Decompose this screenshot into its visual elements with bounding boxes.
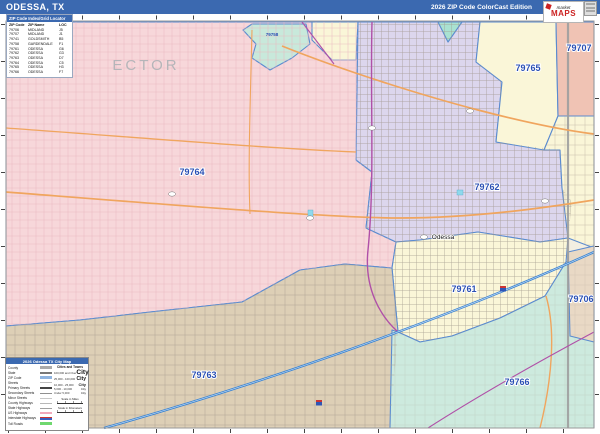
- legend-label: ZIP Code: [8, 376, 21, 380]
- zip-line-sample: [40, 376, 52, 379]
- legend-label: Streets: [8, 381, 18, 385]
- zip-label-79763: 79763: [191, 370, 216, 380]
- population-range: Under 5,000: [54, 391, 69, 395]
- zip-label-79758: 79758: [266, 32, 279, 37]
- legend-label: State Highways: [8, 406, 30, 410]
- population-range: 25,000 - 100,000: [54, 377, 75, 381]
- legend-label: State: [8, 371, 15, 375]
- cell-name: ODESSA: [28, 70, 59, 75]
- brand-logo: market MAPS: [543, 1, 584, 23]
- legend-label: Primary Streets: [8, 386, 30, 390]
- county-label: ECTOR: [112, 57, 179, 74]
- legend-label: Minor Streets: [8, 396, 27, 400]
- legend-label: Secondary Streets: [8, 391, 34, 395]
- legend-label: Interstate Highways: [8, 416, 36, 420]
- cell-loc: F7: [59, 70, 70, 75]
- legend-row: Toll Roads: [8, 421, 52, 426]
- zip-label-79766: 79766: [504, 377, 529, 387]
- zip-label-79761: 79761: [451, 284, 476, 294]
- city-label-odessa: Odessa: [432, 234, 455, 241]
- brand-name-text: MAPS: [551, 10, 576, 18]
- secondary-street-sample: [40, 393, 52, 394]
- scale-miles-ruler: [57, 401, 83, 405]
- state-highway-sample: [40, 408, 52, 409]
- zip-index-panel: ZIP Code Index/Grid Locator ZIP Code ZIP…: [6, 14, 73, 78]
- stamp-line: [586, 3, 595, 5]
- info-stamp: [584, 1, 597, 16]
- scale-km-ruler: [57, 410, 83, 414]
- stamp-line: [586, 10, 595, 12]
- city-sample-tiny: City: [81, 391, 86, 395]
- scale-miles-block: Scale in Miles: [54, 397, 86, 405]
- population-range: 10,000 - 25,000: [54, 383, 74, 387]
- legend-label: County: [8, 366, 18, 370]
- zip-index-title: ZIP Code Index/Grid Locator: [7, 15, 72, 22]
- toll-road-sample: [40, 422, 52, 424]
- legend-line-column: County State ZIP Code Streets Primary St…: [8, 365, 52, 426]
- minor-street-sample: [40, 398, 52, 399]
- city-size-row: Under 5,000City: [54, 391, 86, 395]
- us-highway-sample: [40, 412, 52, 414]
- page-title: ODESSA, TX: [6, 2, 65, 12]
- zip-label-79706: 79706: [568, 294, 593, 304]
- scale-km-block: Scale in Kilometers: [54, 406, 86, 414]
- water-pond: [457, 190, 463, 195]
- zip-label-79707: 79707: [566, 43, 591, 53]
- scale-km-label: Scale in Kilometers: [54, 406, 86, 410]
- title-bar: ODESSA, TX 2026 ZIP Code ColorCast Editi…: [0, 0, 600, 14]
- zip-index-table: ZIP Code ZIP Name LOC 79706MIDLANDJ5 797…: [7, 22, 72, 77]
- street-line-sample: [40, 382, 52, 383]
- primary-street-sample: [40, 387, 52, 388]
- map-poster: ECTOR 79764 79762 79765 79707 79761 7976…: [0, 0, 600, 434]
- map-canvas: ECTOR 79764 79762 79765 79707 79761 7976…: [0, 0, 600, 434]
- city-size-row: 100,000 and OverCity: [54, 369, 86, 376]
- stamp-line: [586, 7, 595, 9]
- cell-zip: 79766: [9, 70, 28, 75]
- zip-label-79765: 79765: [515, 63, 540, 73]
- zip-label-79764: 79764: [179, 167, 204, 177]
- county-line-sample: [40, 366, 52, 369]
- map-legend-panel: 2026 Odessa TX City Map County State ZIP…: [5, 357, 89, 431]
- region-79707: [556, 22, 594, 116]
- population-range: 100,000 and Over: [54, 371, 76, 375]
- legend-label: US Highways: [8, 411, 27, 415]
- edition-label: 2026 ZIP Code ColorCast Edition: [431, 4, 532, 11]
- legend-label: Toll Roads: [8, 422, 23, 426]
- table-row: 79766ODESSAF7: [9, 70, 70, 75]
- legend-cities-column: Cities and Towns 100,000 and OverCity 25…: [54, 365, 86, 426]
- interstate-sample: [40, 417, 52, 420]
- legend-label: County Highways: [8, 401, 33, 405]
- city-sample-large: City: [76, 369, 88, 376]
- county-highway-sample: [40, 403, 52, 404]
- state-line-sample: [40, 372, 52, 374]
- zip-label-79762: 79762: [474, 182, 499, 192]
